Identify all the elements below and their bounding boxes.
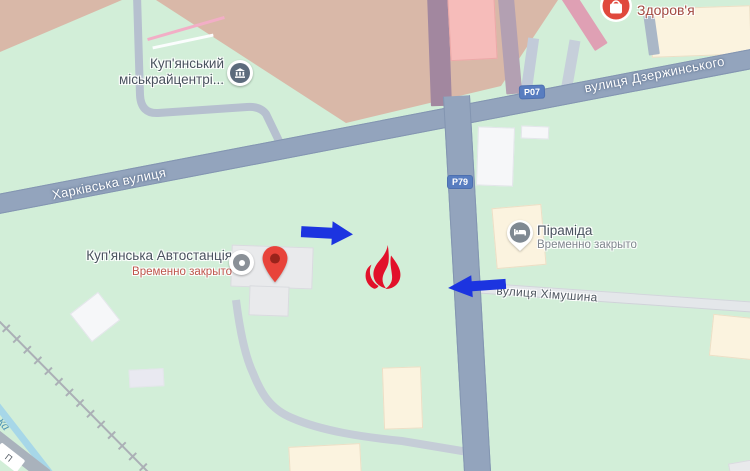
government-building-glyph bbox=[230, 63, 250, 83]
poi-label-miskraitsentr[interactable]: Куп'янський міськрайцентрі... bbox=[20, 56, 224, 87]
poi-status-piramida: Временно закрыто bbox=[537, 239, 637, 251]
flame-marker-icon bbox=[359, 243, 407, 295]
route-badge-p79: Р79 bbox=[447, 175, 473, 189]
building bbox=[476, 126, 515, 186]
building bbox=[129, 368, 165, 388]
route-badge-p07: Р07 bbox=[519, 85, 545, 100]
arrow-pointing-right bbox=[300, 218, 353, 249]
bus-station-building bbox=[248, 285, 289, 316]
red-store-circle-icon[interactable] bbox=[600, 0, 632, 22]
red-map-pin-icon[interactable] bbox=[262, 245, 288, 284]
map-canvas[interactable]: Харківська вулиця вулиця Дзержинського в… bbox=[0, 0, 750, 471]
building bbox=[382, 366, 423, 429]
arrow-pointing-left bbox=[445, 271, 507, 301]
building bbox=[288, 443, 361, 471]
poi-label-avtostantsiia[interactable]: Куп'янська Автостанція Временно закрыто bbox=[28, 248, 232, 280]
poi-label-piramida[interactable]: Піраміда bbox=[537, 223, 592, 238]
gray-dot-poi-icon[interactable] bbox=[229, 250, 254, 275]
government-building-icon[interactable] bbox=[227, 60, 253, 86]
building bbox=[521, 126, 549, 140]
poi-label-zdorovia[interactable]: Здоров'я bbox=[637, 2, 695, 18]
building bbox=[709, 314, 750, 360]
hotel-bed-pin-icon[interactable] bbox=[507, 220, 533, 252]
minor-road-busstation bbox=[236, 300, 468, 452]
highlighted-building bbox=[447, 0, 497, 61]
